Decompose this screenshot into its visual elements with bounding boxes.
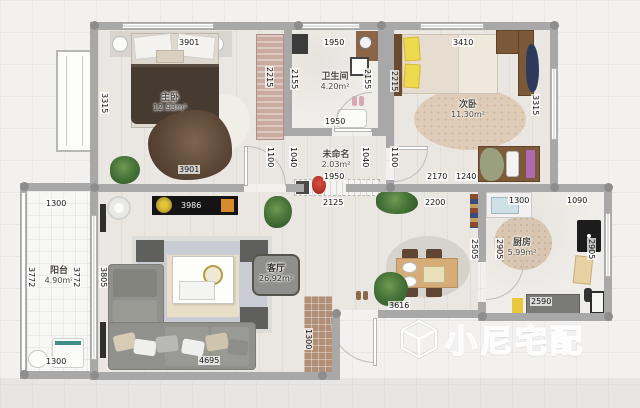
wall <box>90 372 340 380</box>
wall-mounted-item[interactable] <box>100 204 106 232</box>
dim-balcony-bottom: 1300 <box>45 357 67 366</box>
dim-bath-right: 2155 <box>363 68 372 90</box>
room-name: 厨房 <box>498 238 546 248</box>
dim-hall-left2: 1100 <box>266 146 275 168</box>
yellow-pillow[interactable] <box>403 63 421 88</box>
window-kitchen-right <box>605 213 611 277</box>
window-bath-top <box>298 23 360 29</box>
dim-master-bottom: 3901 <box>178 165 200 174</box>
room-area: 12.93m² <box>140 103 200 113</box>
dim-bath-bottom: 1950 <box>324 117 346 126</box>
room-area: 2.03m² <box>316 160 356 170</box>
corner-handle[interactable] <box>386 183 395 192</box>
slippers[interactable] <box>356 291 361 300</box>
wash-basin[interactable] <box>359 36 372 49</box>
room-area: 4.20m² <box>312 82 358 92</box>
dim-pass-left: 2125 <box>322 198 344 207</box>
corner-handle[interactable] <box>332 309 341 318</box>
room-name: 次卧 <box>440 100 496 110</box>
plate <box>402 262 417 273</box>
corner-handle[interactable] <box>550 183 559 192</box>
bed2-door-leaf[interactable] <box>394 146 428 150</box>
dim-master-wardrobe: 2215 <box>265 66 274 88</box>
dim-hall-right-span: 2170 <box>426 172 448 181</box>
room-label-master[interactable]: 主卧 12.93m² <box>140 93 200 113</box>
corner-handle[interactable] <box>604 312 613 321</box>
wall-shelf-books[interactable] <box>470 194 478 228</box>
dim-kitchen-top-left: 1300 <box>508 196 530 205</box>
tv-console[interactable]: 3986 <box>152 196 238 215</box>
corner-handle[interactable] <box>90 21 99 30</box>
sofa-cushion <box>113 269 157 297</box>
dim-bed2-left: 2215 <box>390 70 399 92</box>
round-side-table[interactable] <box>107 196 131 220</box>
dim-living-left: 3805 <box>99 266 108 288</box>
dim-balcony-left: 3772 <box>27 266 36 288</box>
sofa-pillow[interactable] <box>133 339 157 357</box>
wall <box>20 183 94 191</box>
coffee-table[interactable] <box>172 256 234 304</box>
dim-bath-left: 2155 <box>290 68 299 90</box>
corner-handle[interactable] <box>294 21 303 30</box>
window-master-top <box>122 23 214 29</box>
floorplan-canvas[interactable]: 3986 客厅 26.92m² <box>0 0 640 408</box>
wall <box>90 22 98 193</box>
dim-dining-bottom: 3616 <box>388 301 410 310</box>
living-room-area: 26.92m² <box>254 274 298 284</box>
master-door-leaf[interactable] <box>244 146 248 186</box>
watermark: 小尼宅配 <box>398 316 585 362</box>
tv-console-decor <box>221 199 234 212</box>
wall <box>286 184 304 192</box>
dim-entry: 1300 <box>304 328 313 350</box>
wall <box>284 128 332 136</box>
room-name: 主卧 <box>140 93 200 103</box>
wall <box>478 192 486 262</box>
nightstand-left[interactable] <box>112 36 128 52</box>
fridge[interactable] <box>590 291 605 314</box>
dim-bed2-top: 3410 <box>452 38 474 47</box>
table-tray <box>179 281 215 300</box>
dim-balcony-top: 1300 <box>45 199 67 208</box>
wall <box>372 128 386 136</box>
dim-sofa: 4695 <box>198 356 220 365</box>
desk-mat[interactable] <box>526 150 535 178</box>
window-bed2-right <box>551 68 557 140</box>
dim-kitchen-right: 2905 <box>587 238 596 260</box>
dim-hall-right2: 1100 <box>390 146 399 168</box>
room-name: 卫生间 <box>312 72 358 82</box>
corner-handle[interactable] <box>318 371 327 380</box>
shower-niche[interactable] <box>292 34 308 54</box>
wall <box>20 371 94 379</box>
room-area: 11.30m² <box>440 110 496 120</box>
dim-hall-left1: 1040 <box>289 146 298 168</box>
room-name: 未命名 <box>316 150 356 160</box>
dim-bath-top: 1950 <box>323 38 345 47</box>
master-cushion[interactable] <box>156 50 184 63</box>
dim-balcony-right: 3772 <box>72 266 81 288</box>
living-room-name: 客厅 <box>254 264 298 274</box>
sofa-pillow[interactable] <box>227 339 249 356</box>
plant-room-divider[interactable] <box>376 190 418 214</box>
dim-hall-width: 1950 <box>323 172 345 181</box>
window-living-balcony <box>91 215 97 360</box>
corner-handle[interactable] <box>377 21 386 30</box>
watermark-cube-logo-icon <box>398 318 440 360</box>
background-band <box>0 378 640 408</box>
room-area: 5.99m² <box>498 248 546 258</box>
hanging-plant[interactable] <box>526 44 539 92</box>
desk-chair-drape[interactable] <box>480 148 504 181</box>
room-label-bath[interactable]: 卫生间 4.20m² <box>312 72 358 92</box>
slippers[interactable] <box>363 291 368 300</box>
wall <box>90 184 244 192</box>
wall <box>332 313 340 373</box>
corner-handle[interactable] <box>604 183 613 192</box>
dim-kitchen-left: 2905 <box>495 238 504 260</box>
watermark-text: 小尼宅配 <box>445 316 585 362</box>
dim-tv-wall: 3986 <box>180 201 202 210</box>
corner-handle[interactable] <box>550 21 559 30</box>
dim-master-left: 3315 <box>100 92 109 114</box>
yellow-flower-icon <box>156 197 172 213</box>
bath-door-leaf[interactable] <box>334 128 372 132</box>
armchair-living-label[interactable]: 客厅 26.92m² <box>252 254 300 296</box>
dim-pass-right: 2200 <box>424 198 446 207</box>
corner-handle[interactable] <box>90 371 99 380</box>
corner-handle[interactable] <box>90 183 99 192</box>
room-label-hall[interactable]: 未命名 2.03m² <box>316 150 356 170</box>
dim-bed2-right: 3315 <box>531 94 540 116</box>
washer-panel <box>55 341 81 345</box>
dim-dining-right: 2505 <box>470 238 479 260</box>
window-bed2-top <box>420 23 484 29</box>
window-balcony-left <box>21 192 26 371</box>
dim-hall-right1: 1040 <box>361 146 370 168</box>
rug-corner <box>136 240 164 262</box>
dining-chair[interactable] <box>426 287 442 297</box>
yellow-pillow[interactable] <box>403 36 421 61</box>
dim-kitchen-top-right: 1090 <box>566 196 588 205</box>
bay-window-master <box>56 50 92 152</box>
corner-handle[interactable] <box>20 182 29 191</box>
sofa-pillow[interactable] <box>155 335 179 353</box>
desk-chair[interactable] <box>506 151 519 177</box>
corner-handle[interactable] <box>20 370 29 379</box>
dim-desk: 1240 <box>455 172 477 181</box>
entry-door-leaf[interactable] <box>373 318 377 366</box>
room-label-bed2[interactable]: 次卧 11.30m² <box>440 100 496 120</box>
wall <box>378 30 386 136</box>
dim-kitchen-bottom: 2590 <box>530 297 552 306</box>
wall-mounted-item[interactable] <box>100 322 106 358</box>
dim-master-top: 3901 <box>178 38 200 47</box>
room-label-kitchen[interactable]: 厨房 5.99m² <box>498 238 546 258</box>
food-tray <box>423 266 445 283</box>
